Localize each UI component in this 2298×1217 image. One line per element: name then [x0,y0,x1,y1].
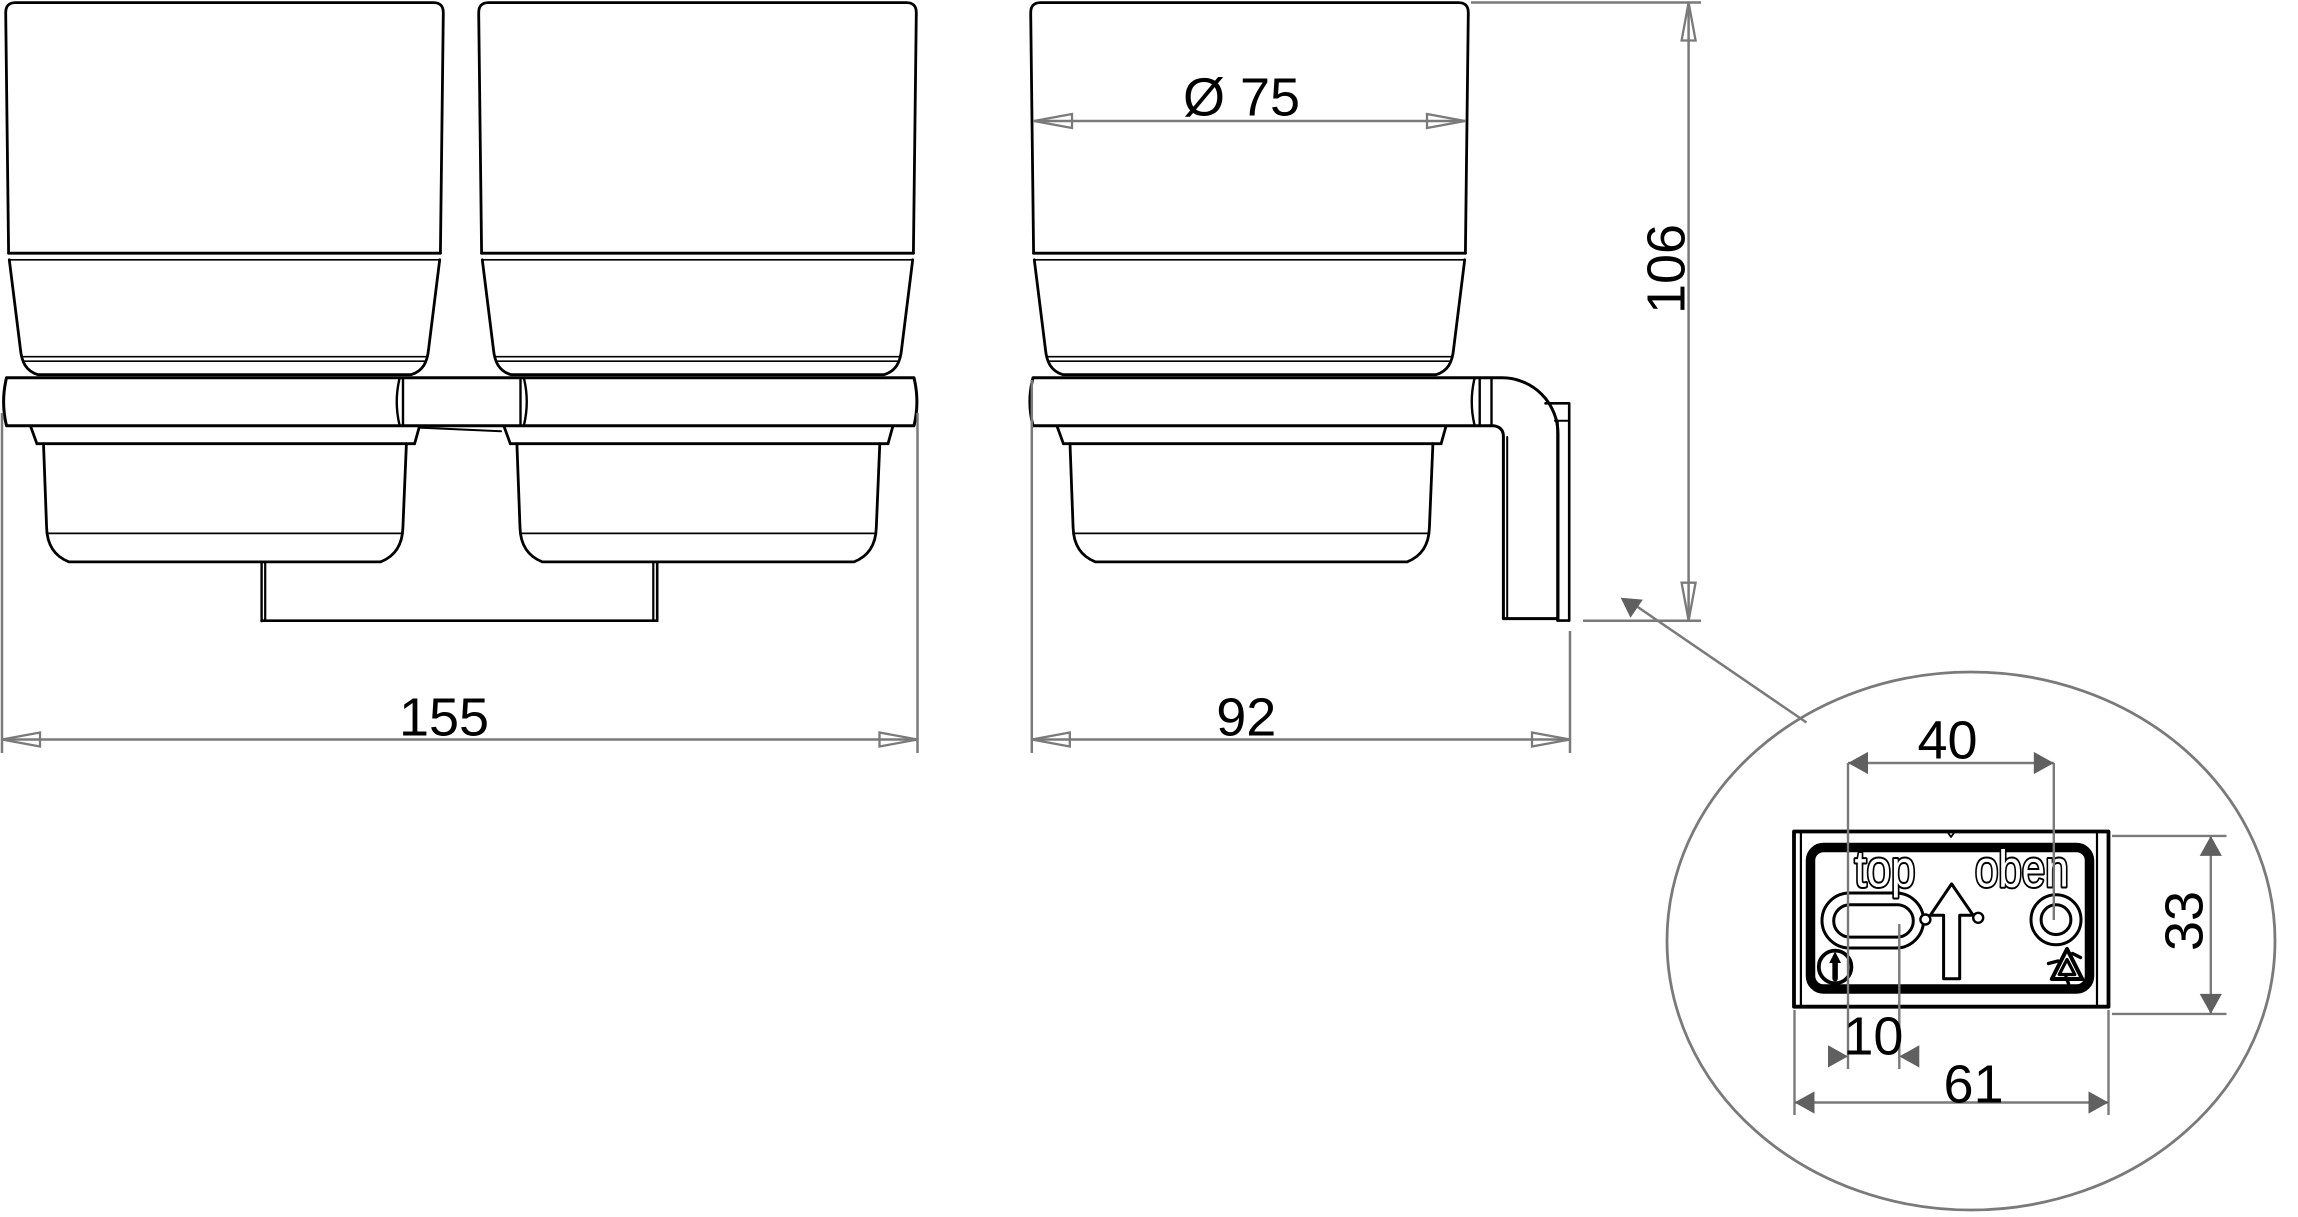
svg-text:33: 33 [2155,891,2215,951]
svg-text:10: 10 [1843,1007,1903,1067]
svg-text:Ø 75: Ø 75 [1183,67,1300,127]
svg-text:61: 61 [1944,1055,2004,1115]
svg-text:106: 106 [1636,224,1696,314]
svg-text:top: top [1855,841,1916,898]
svg-text:155: 155 [399,688,489,748]
svg-text:40: 40 [1917,711,1977,771]
svg-text:92: 92 [1216,688,1276,748]
